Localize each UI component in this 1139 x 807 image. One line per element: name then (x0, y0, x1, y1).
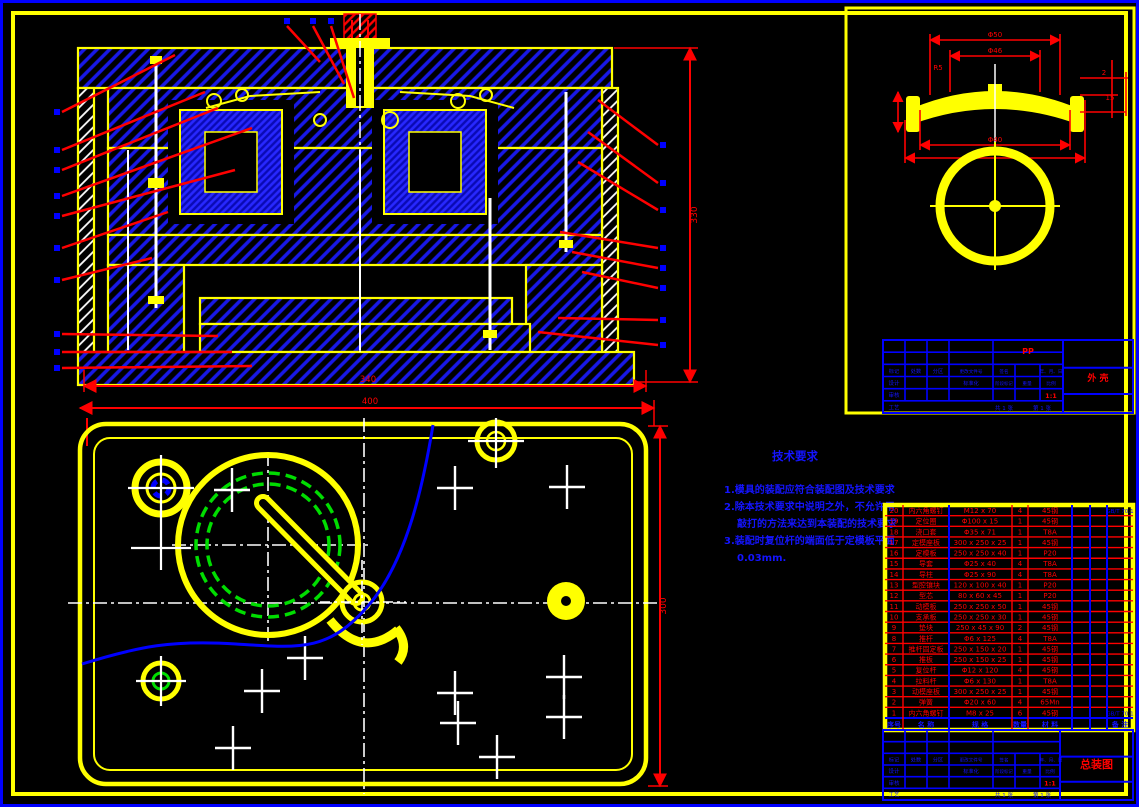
balloon-marker (54, 147, 60, 153)
cad-drawing-canvas: 330 340 400 (0, 0, 1139, 807)
title-block-label: 标记 (889, 756, 899, 764)
tech-req-line: 敲打的方法来达到本装配的技术要求 (737, 517, 898, 530)
table-header-cell: 备 注 (1111, 720, 1128, 729)
product-dim-text: Φ50 (988, 31, 1002, 39)
title-block-label: 阶段标记 (995, 380, 1013, 387)
table-cell: 弹簧 (919, 698, 933, 707)
table-cell: 1 (1018, 645, 1022, 653)
title-block-label: 标准化 (963, 379, 979, 387)
title-block-sheet: 共 1 张 (995, 791, 1013, 799)
table-cell: 1 (1018, 688, 1022, 696)
balloon-marker (660, 142, 666, 148)
table-cell: 6 (1018, 709, 1023, 717)
title-block-label: 审核 (888, 779, 900, 787)
table-cell: Φ25 x 90 (964, 571, 996, 579)
table-cell: 250 x 150 x 20 (954, 645, 1007, 653)
table-cell: 11 (890, 603, 899, 611)
table-cell: T8A (1042, 560, 1057, 568)
table-header-cell: 材 料 (1041, 720, 1058, 729)
table-cell: 7 (892, 645, 896, 653)
table-cell: 65Mn (1040, 699, 1059, 707)
table-cell: 250 x 250 x 50 (954, 603, 1007, 611)
table-cell: 1 (1018, 656, 1022, 664)
balloon-marker (660, 207, 666, 213)
table-cell: 14 (890, 571, 899, 579)
table-cell: 13 (890, 582, 899, 590)
table-cell: T8A (1042, 635, 1057, 643)
title-block-sheet: 第 1 张 (1033, 791, 1051, 799)
table-cell: T8A (1042, 677, 1057, 685)
balloon-marker (660, 265, 666, 271)
table-cell: M12 x 70 (964, 507, 996, 515)
title-block-label: 工艺 (888, 792, 900, 799)
table-cell: 1 (1018, 603, 1022, 611)
balloon-marker (54, 193, 60, 199)
balloon-marker (660, 317, 666, 323)
balloon-marker (310, 18, 316, 24)
table-cell: 4 (1018, 635, 1023, 643)
plan-view: 300 (68, 418, 669, 794)
balloon-marker (54, 331, 60, 337)
table-cell: 16 (890, 550, 899, 558)
table-cell: 1 (1018, 592, 1022, 600)
table-cell: 1 (1018, 613, 1022, 621)
table-cell: 18 (890, 528, 899, 536)
table-cell: M8 x 25 (966, 709, 994, 717)
screw-right-middle (547, 582, 585, 620)
table-cell: 1 (1018, 518, 1022, 526)
table-cell: 4 (1018, 507, 1023, 515)
title-block-label: 工艺 (888, 404, 900, 411)
table-cell: 45钢 (1042, 517, 1058, 526)
table-cell: 1 (1018, 528, 1022, 536)
table-cell: 5 (892, 667, 896, 675)
title-block-label: 比例 (1045, 768, 1055, 775)
table-cell: Φ25 x 40 (964, 560, 996, 568)
table-cell: Φ6 x 125 (964, 635, 996, 643)
table-cell: P20 (1043, 550, 1056, 558)
balloon-marker (54, 277, 60, 283)
plan-view-dimension: 300 (648, 426, 669, 786)
table-cell: 推杆 (919, 634, 933, 643)
table-cell: 4 (1018, 560, 1023, 568)
table-cell: 45钢 (1042, 708, 1058, 717)
balloon-marker (660, 245, 666, 251)
table-cell: 4 (1018, 667, 1023, 675)
title-block-scale: 1:1 (1045, 392, 1057, 400)
dim-base-width: 400 (362, 397, 378, 407)
balloon-marker (54, 213, 60, 219)
screw-bottom-left (136, 656, 186, 706)
table-cell: 45钢 (1042, 506, 1058, 515)
table-cell: 250 x 250 x 40 (954, 550, 1007, 558)
detail-title-block: 标记处数分区更改文件号签名年、月、日设计审核工艺标准化阶段标记重量比例1:1共 … (883, 340, 1133, 413)
balloon-marker (284, 18, 290, 24)
title-block-label: 标记 (889, 367, 899, 375)
product-dim-texts: Φ50Φ46R5215Φ40 (933, 31, 1114, 144)
front-section-view: 330 340 400 (54, 14, 700, 446)
title-block-label: 设计 (888, 767, 900, 775)
table-cell: 导套 (919, 559, 933, 568)
table-cell: T8A (1042, 571, 1057, 579)
table-cell: 推杆固定板 (909, 644, 944, 653)
title-block-label: 签名 (999, 368, 1008, 375)
table-cell: T8A (1042, 528, 1057, 536)
table-cell: 20 (890, 507, 899, 515)
title-block-label: 分区 (933, 756, 943, 764)
table-cell: 45钢 (1042, 655, 1058, 664)
table-cell: 45钢 (1042, 687, 1058, 696)
title-block-scale: 1:1 (1044, 779, 1056, 787)
title-block-label: 更改文件号 (960, 368, 983, 375)
table-cell: 1 (1018, 550, 1022, 558)
product-dim-text: 15 (1106, 94, 1115, 102)
table-cell: 型腔镶块 (912, 581, 940, 590)
table-cell: 内六角螺钉 (909, 506, 944, 515)
title-block-label: 审核 (888, 391, 900, 399)
table-cell: 80 x 60 x 45 (958, 592, 1002, 600)
title-block-sheet: 共 1 张 (995, 404, 1013, 412)
product-detail-view: Φ50Φ46R5215Φ40 标记处数分区更改文件号签名年、月、日设计审核工艺标… (846, 8, 1134, 413)
title-block-label: 标准化 (963, 767, 979, 775)
table-cell: 4 (892, 677, 897, 685)
table-cell: 垫块 (919, 623, 933, 632)
table-cell: 8 (892, 635, 896, 643)
table-cell: 3 (892, 688, 896, 696)
table-cell: GB/T 70.1 (1106, 509, 1133, 515)
parts-table-header: 序号名 称规 格数量材 料备 注 (886, 720, 1128, 729)
tech-req-title: 技术要求 (772, 449, 818, 463)
table-cell: 定模座板 (912, 538, 940, 547)
tech-req-line: 0.03mm. (737, 553, 786, 564)
title-block-label: 阶段标记 (995, 768, 1013, 775)
title-block-label: 设计 (888, 379, 900, 387)
title-block-material: PP (1022, 347, 1034, 356)
balloon-marker (54, 167, 60, 173)
technical-requirements: 技术要求 1.模具的装配应符合装配图及技术要求 2.除本技术要求中说明之外，不允… (724, 449, 898, 564)
table-cell: Φ100 x 15 (962, 518, 998, 526)
table-cell: 1 (1018, 677, 1022, 685)
balloon-marker (54, 349, 60, 355)
table-cell: 45钢 (1042, 623, 1058, 632)
table-cell: 9 (892, 624, 896, 632)
balloon-marker (660, 342, 666, 348)
product-dim-text: R5 (933, 64, 942, 72)
table-cell: 导柱 (919, 570, 933, 579)
table-cell: 动模座板 (912, 687, 940, 696)
title-block-label: 重量 (1022, 380, 1032, 387)
dim-front-height: 330 (690, 206, 700, 223)
table-cell: GB/T 70.1 (1106, 711, 1133, 717)
table-cell: 1 (1018, 539, 1022, 547)
balloon-marker (54, 365, 60, 371)
table-cell: 定位圈 (916, 517, 937, 526)
dim-front-width: 340 (360, 375, 376, 385)
title-block-label: 年、月、日 (1040, 757, 1063, 764)
table-cell: 浇口套 (916, 527, 937, 536)
table-cell: 型芯 (919, 591, 933, 600)
table-header-cell: 名 称 (918, 720, 934, 729)
table-cell: 10 (890, 613, 899, 621)
table-header-cell: 规 格 (972, 720, 989, 729)
balloon-marker (328, 18, 334, 24)
balloon-marker (54, 245, 60, 251)
table-cell: 动模板 (916, 602, 937, 611)
balloon-marker (660, 285, 666, 291)
tech-req-line: 1.模具的装配应符合装配图及技术要求 (724, 483, 896, 496)
balloon-marker (54, 109, 60, 115)
cad-drawing: 330 340 400 (0, 0, 1139, 807)
product-dim-text: Φ46 (988, 47, 1003, 55)
table-cell: Φ12 x 120 (962, 667, 998, 675)
table-cell: 300 x 250 x 25 (954, 688, 1007, 696)
table-cell: 推板 (919, 655, 933, 664)
table-cell: P20 (1043, 592, 1056, 600)
table-cell: 4 (1018, 699, 1023, 707)
table-cell: 1 (1018, 582, 1022, 590)
table-header-cell: 数量 (1013, 720, 1027, 729)
title-block-label: 处数 (911, 367, 922, 375)
table-cell: 12 (890, 592, 899, 600)
table-cell: 45钢 (1042, 602, 1058, 611)
table-cell: 内六角螺钉 (909, 708, 944, 717)
table-cell: 45钢 (1042, 612, 1058, 621)
table-cell: 2 (892, 699, 896, 707)
table-cell: 支承板 (916, 612, 937, 621)
table-header-cell: 序号 (886, 720, 901, 729)
table-cell: 45钢 (1042, 644, 1058, 653)
table-cell: P20 (1043, 582, 1056, 590)
title-block-label: 签名 (999, 757, 1008, 764)
tech-req-line: 2.除本技术要求中说明之外，不允许用 (724, 500, 895, 513)
title-block-label: 分区 (933, 367, 943, 375)
table-cell: 1 (892, 709, 896, 717)
main-title-block: 标记处数分区更改文件号签名年、月、日设计审核工艺标准化阶段标记重量比例1:1共 … (883, 730, 1133, 800)
table-cell: 定模板 (916, 549, 937, 558)
table-cell: 15 (890, 560, 899, 568)
table-cell: 45钢 (1042, 666, 1058, 675)
balloon-marker (660, 180, 666, 186)
table-cell: 17 (890, 539, 899, 547)
table-cell: Φ20 x 60 (964, 699, 996, 707)
table-cell: 拉料杆 (916, 676, 937, 685)
table-cell: 2 (1018, 624, 1022, 632)
title-block-label: 比例 (1046, 380, 1056, 387)
dim-plan-depth: 300 (659, 597, 669, 614)
table-cell: Φ35 x 71 (964, 528, 996, 536)
table-cell: 300 x 250 x 25 (954, 539, 1007, 547)
table-cell: 250 x 45 x 90 (956, 624, 1004, 632)
title-block-drawing-name: 总装图 (1080, 757, 1113, 771)
table-cell: 45钢 (1042, 538, 1058, 547)
product-dim-text: 2 (1102, 69, 1106, 77)
table-cell: 250 x 250 x 30 (954, 613, 1007, 621)
table-cell: Φ6 x 130 (964, 677, 996, 685)
table-cell: 120 x 100 x 40 (954, 582, 1007, 590)
title-block-drawing-name: 外 壳 (1086, 372, 1108, 384)
title-block-label: 年、月、日 (1040, 368, 1063, 375)
table-cell: 19 (890, 518, 899, 526)
table-cell: 4 (1018, 571, 1023, 579)
parts-list-table: 20内六角螺钉M12 x 70445钢GB/T 70.119定位圈Φ100 x … (885, 505, 1134, 730)
tech-req-line: 3.装配时复位杆的端面低于定模板平面 (724, 534, 895, 547)
table-cell: 复位杆 (916, 666, 937, 675)
title-block-label: 重量 (1022, 768, 1032, 775)
title-block-label: 处数 (911, 756, 922, 764)
table-cell: 6 (892, 656, 897, 664)
title-block-sheet: 第 1 张 (1033, 404, 1051, 412)
table-cell: 250 x 150 x 25 (954, 656, 1007, 664)
product-top-view (930, 142, 1060, 270)
title-block-label: 更改文件号 (960, 757, 983, 764)
